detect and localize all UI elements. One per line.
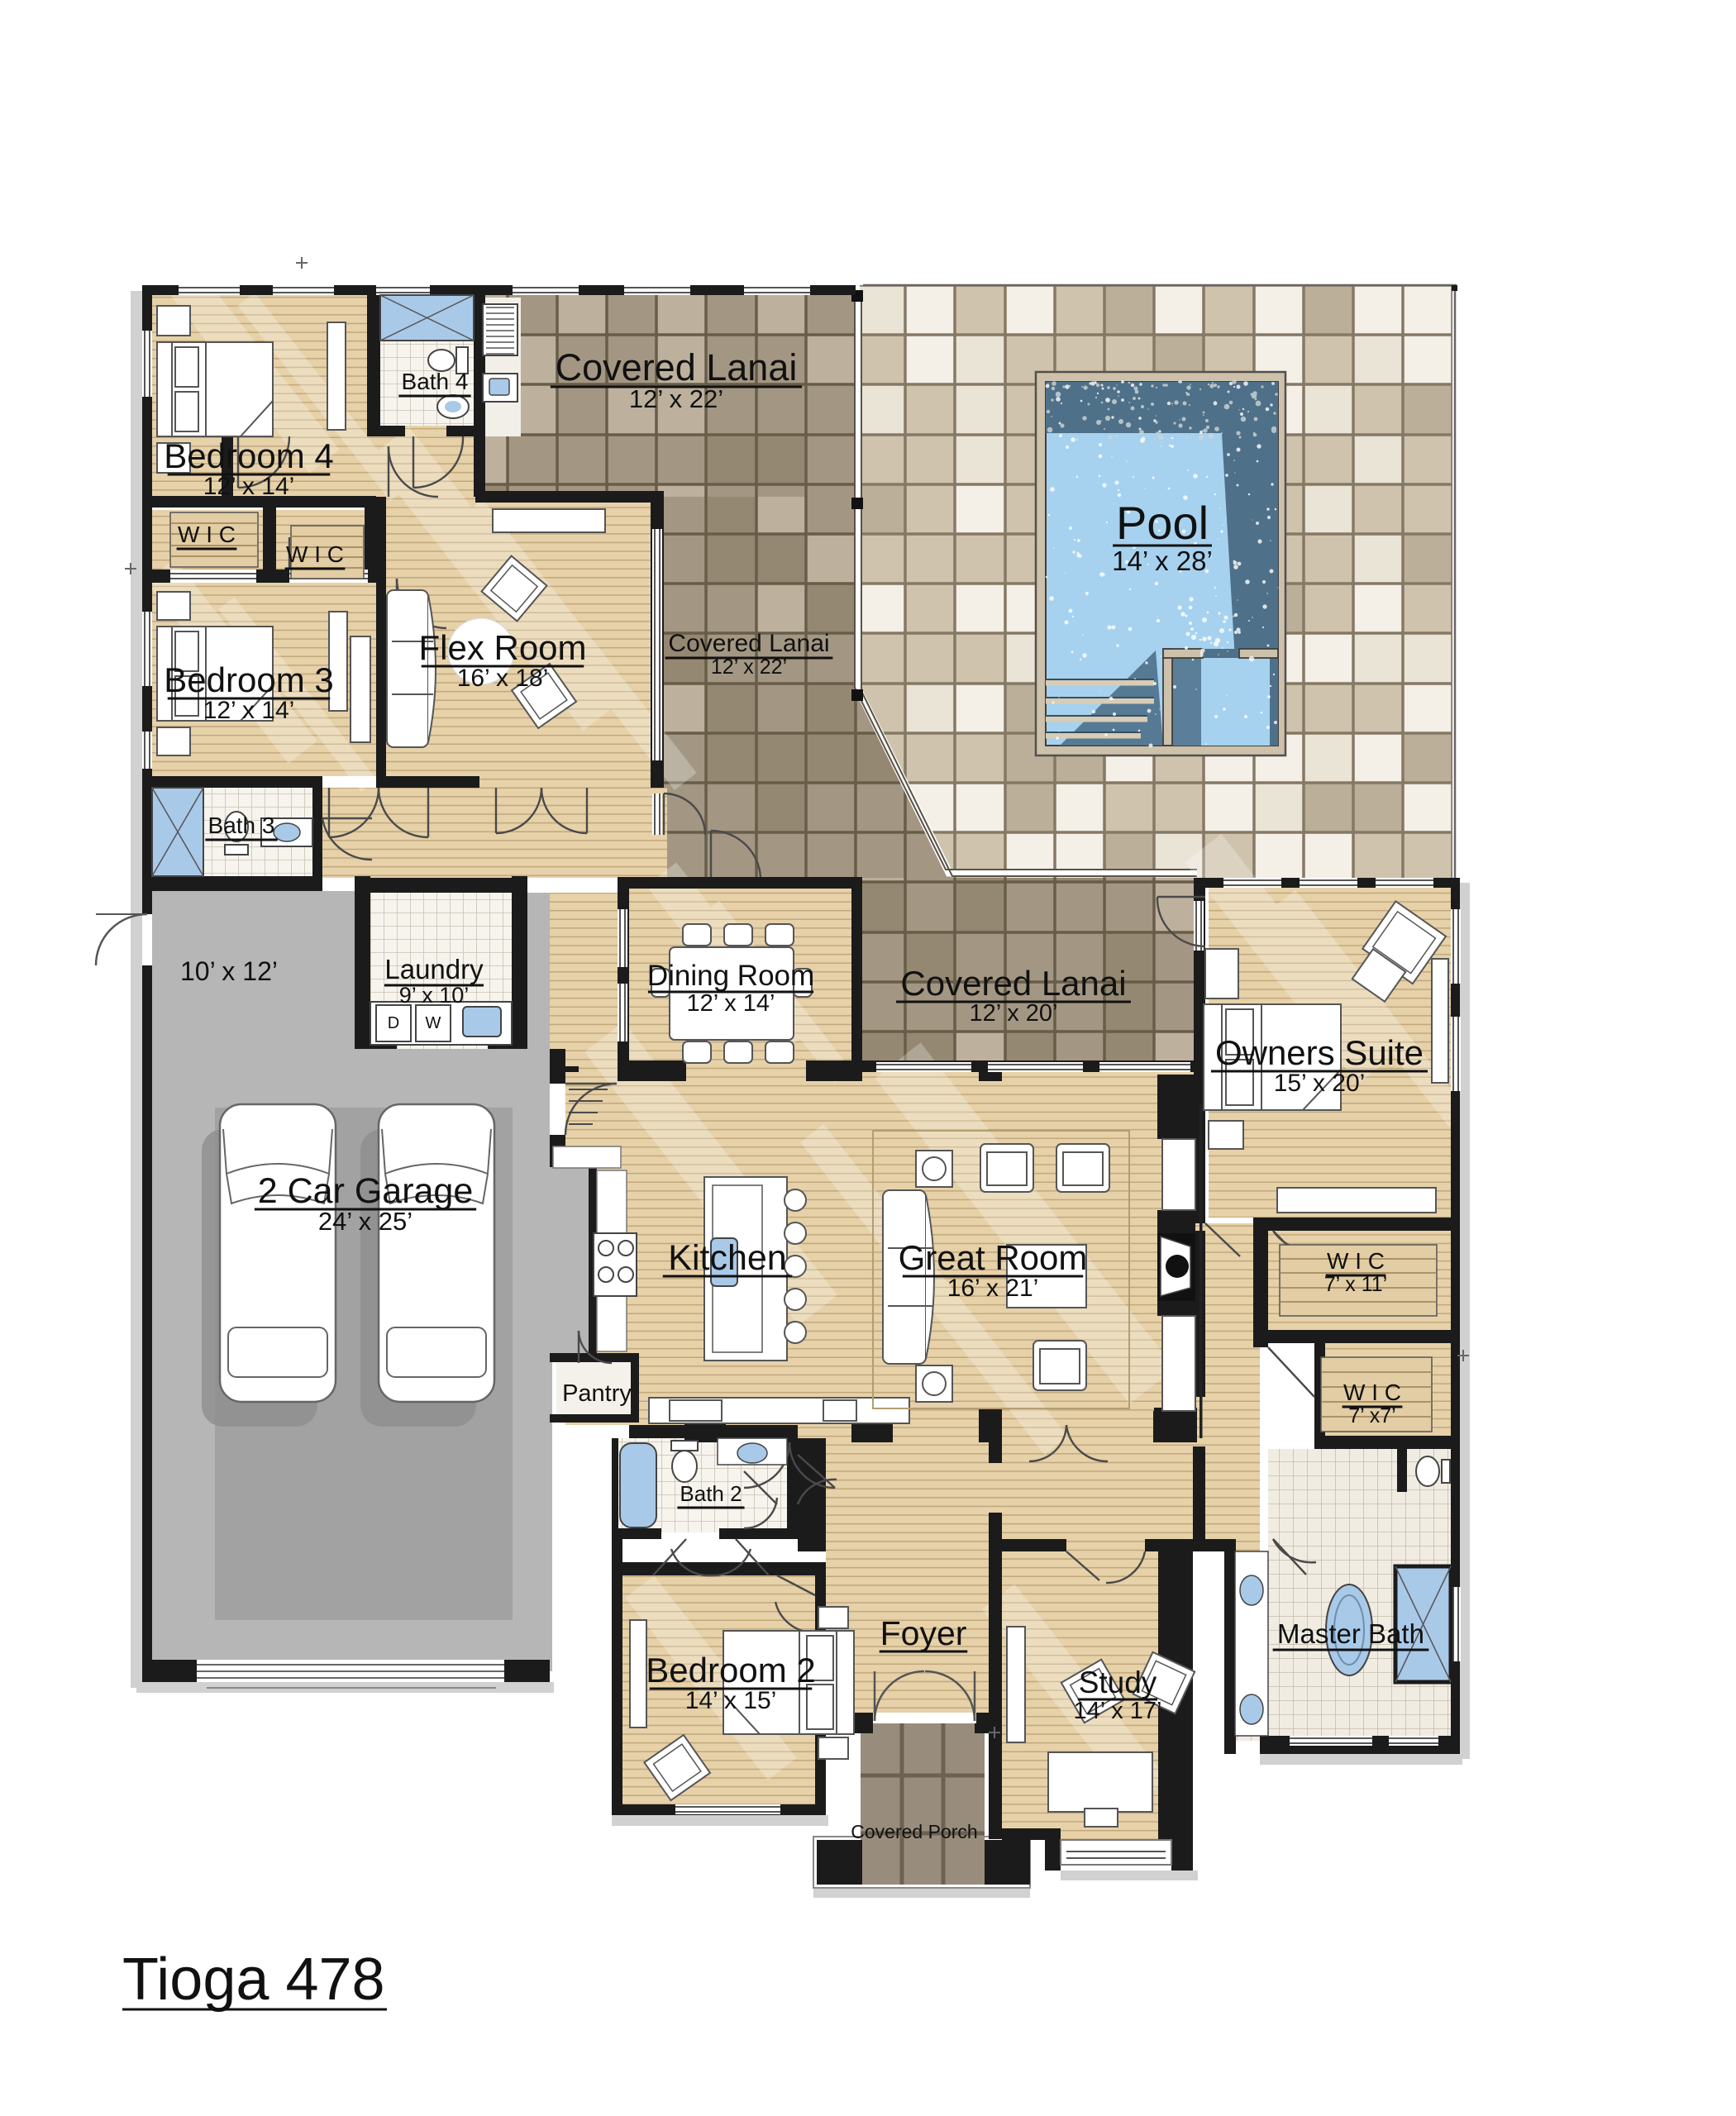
svg-text:Covered Lanai: Covered Lanai (900, 964, 1126, 1003)
svg-text:W: W (426, 1014, 441, 1032)
svg-text:Pool: Pool (1116, 497, 1209, 549)
svg-text:W I C: W I C (286, 541, 344, 567)
svg-text:Flex Room: Flex Room (418, 628, 586, 667)
svg-text:12’ x 14’: 12’ x 14’ (203, 697, 295, 724)
svg-text:16’ x 18’: 16’ x 18’ (457, 665, 549, 692)
svg-text:12’ x 14’: 12’ x 14’ (203, 473, 295, 500)
svg-text:16’ x 21’: 16’ x 21’ (947, 1275, 1039, 1302)
svg-text:Covered Lanai: Covered Lanai (668, 630, 829, 657)
svg-text:14’ x 28’: 14’ x 28’ (1112, 546, 1213, 576)
svg-text:24’ x 25’: 24’ x 25’ (318, 1207, 413, 1236)
svg-text:Study: Study (1079, 1666, 1157, 1699)
svg-text:Master Bath: Master Bath (1277, 1618, 1424, 1649)
svg-text:Foyer: Foyer (880, 1614, 967, 1652)
svg-text:14’ x 17’: 14’ x 17’ (1074, 1698, 1162, 1724)
svg-text:Bedroom 2: Bedroom 2 (646, 1651, 815, 1689)
svg-text:7’ x7’: 7’ x7’ (1348, 1404, 1395, 1427)
svg-text:Dining Room: Dining Room (647, 960, 814, 992)
svg-text:Owners Suite: Owners Suite (1215, 1033, 1424, 1072)
svg-text:Tioga 478: Tioga 478 (122, 1947, 385, 2013)
svg-text:Bedroom 4: Bedroom 4 (164, 436, 333, 475)
svg-text:Bath 3: Bath 3 (208, 813, 275, 838)
svg-text:Bedroom 3: Bedroom 3 (164, 660, 333, 699)
svg-text:Bath 2: Bath 2 (680, 1481, 742, 1506)
svg-text:12’ x 22’: 12’ x 22’ (629, 384, 723, 413)
svg-text:2 Car Garage: 2 Car Garage (258, 1171, 474, 1211)
svg-text:Covered Lanai: Covered Lanai (556, 346, 798, 388)
svg-text:14’ x 15’: 14’ x 15’ (685, 1687, 777, 1714)
svg-text:W I C: W I C (1327, 1248, 1385, 1274)
svg-text:15’ x 20’: 15’ x 20’ (1274, 1070, 1366, 1097)
svg-text:Laundry: Laundry (384, 954, 484, 984)
svg-text:D: D (388, 1014, 399, 1032)
svg-text:12’ x 20’: 12’ x 20’ (970, 1000, 1058, 1027)
svg-text:12’ x 14’: 12’ x 14’ (687, 990, 775, 1017)
svg-text:Covered Porch: Covered Porch (851, 1821, 977, 1842)
svg-text:Kitchen: Kitchen (668, 1238, 786, 1278)
svg-text:Great Room: Great Room (899, 1238, 1088, 1277)
svg-text:Pantry: Pantry (562, 1380, 632, 1407)
svg-text:9’ x 10’: 9’ x 10’ (399, 983, 470, 1008)
svg-text:7’ x 11’: 7’ x 11’ (1324, 1273, 1387, 1296)
svg-text:W I C: W I C (1343, 1380, 1401, 1405)
svg-text:Bath 4: Bath 4 (402, 369, 469, 394)
svg-text:W I C: W I C (178, 522, 236, 547)
svg-text:12’ x 22’: 12’ x 22’ (711, 655, 787, 679)
svg-text:10’ x 12’: 10’ x 12’ (180, 956, 278, 986)
